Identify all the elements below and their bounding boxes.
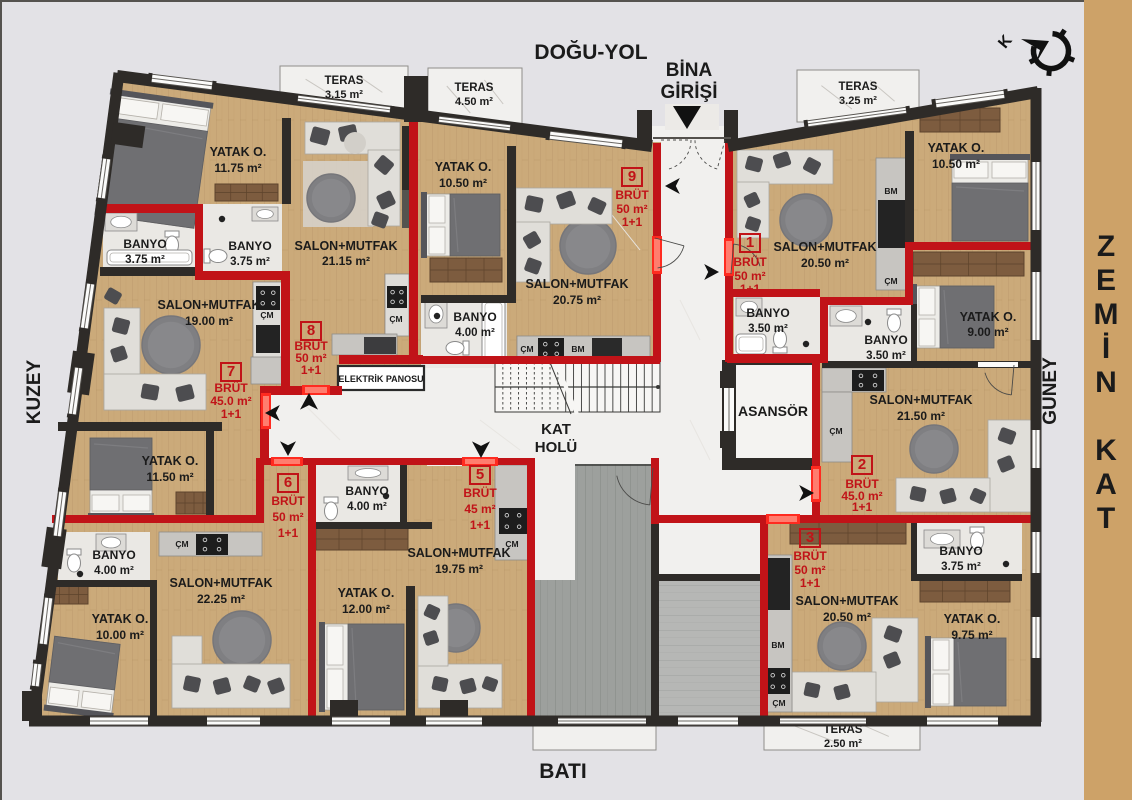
svg-text:A: A: [1095, 468, 1117, 501]
svg-text:ÇM: ÇM: [829, 426, 842, 436]
svg-text:ÇM: ÇM: [260, 310, 273, 320]
svg-text:N: N: [1095, 366, 1117, 399]
svg-text:SALON+MUTFAK: SALON+MUTFAK: [294, 239, 397, 253]
svg-text:10.50 m²: 10.50 m²: [932, 157, 980, 171]
svg-text:3: 3: [806, 529, 814, 546]
svg-text:19.00 m²: 19.00 m²: [185, 314, 233, 328]
svg-text:3.75 m²: 3.75 m²: [125, 254, 165, 266]
svg-text:DOĞU-YOL: DOĞU-YOL: [534, 40, 647, 64]
svg-text:K: K: [1095, 434, 1117, 467]
svg-text:YATAK O.: YATAK O.: [142, 454, 199, 468]
svg-text:21.15 m²: 21.15 m²: [322, 254, 370, 268]
svg-text:3.75 m²: 3.75 m²: [230, 256, 270, 268]
svg-text:TERAS: TERAS: [455, 82, 494, 94]
svg-text:E: E: [1096, 264, 1116, 297]
svg-text:BANYO: BANYO: [123, 237, 166, 251]
svg-text:KAT: KAT: [541, 421, 571, 438]
svg-text:YATAK O.: YATAK O.: [960, 310, 1017, 324]
svg-text:5: 5: [476, 466, 484, 483]
svg-text:T: T: [1097, 502, 1115, 535]
svg-text:BANYO: BANYO: [864, 333, 907, 347]
svg-text:SALON+MUTFAK: SALON+MUTFAK: [407, 546, 510, 560]
svg-text:50 m²: 50 m²: [272, 510, 303, 524]
svg-text:ÇM: ÇM: [884, 276, 897, 286]
svg-text:3.50 m²: 3.50 m²: [866, 350, 906, 362]
svg-text:BRÜT: BRÜT: [463, 485, 497, 500]
svg-text:SALON+MUTFAK: SALON+MUTFAK: [525, 277, 628, 291]
svg-text:M: M: [1094, 298, 1119, 331]
svg-text:GÜNEY: GÜNEY: [1040, 357, 1061, 425]
svg-text:20.50 m²: 20.50 m²: [801, 256, 849, 270]
svg-text:11.50 m²: 11.50 m²: [146, 470, 193, 484]
svg-text:YATAK O.: YATAK O.: [928, 141, 985, 155]
svg-text:BM: BM: [571, 344, 584, 354]
svg-text:7: 7: [227, 363, 235, 380]
svg-text:10.50 m²: 10.50 m²: [439, 176, 487, 190]
svg-text:İ: İ: [1102, 332, 1110, 365]
svg-text:BRÜT: BRÜT: [615, 187, 649, 202]
svg-text:YATAK O.: YATAK O.: [92, 612, 149, 626]
svg-text:45.0 m²: 45.0 m²: [210, 394, 251, 408]
svg-text:1+1: 1+1: [278, 526, 299, 540]
svg-text:1: 1: [746, 234, 754, 251]
svg-text:GİRİŞİ: GİRİŞİ: [660, 82, 717, 103]
svg-text:BANYO: BANYO: [228, 239, 271, 253]
svg-text:BM: BM: [884, 186, 897, 196]
svg-text:4.50 m²: 4.50 m²: [455, 96, 493, 108]
svg-text:YATAK O.: YATAK O.: [435, 160, 492, 174]
svg-text:10.00 m²: 10.00 m²: [96, 628, 144, 642]
svg-text:ASANSÖR: ASANSÖR: [738, 403, 808, 419]
svg-text:BRÜT: BRÜT: [271, 493, 305, 508]
svg-text:YATAK O.: YATAK O.: [338, 586, 395, 600]
svg-text:1+1: 1+1: [800, 576, 821, 590]
svg-text:1+1: 1+1: [622, 215, 643, 229]
svg-text:9.75 m²: 9.75 m²: [951, 628, 992, 642]
svg-text:BRÜT: BRÜT: [733, 254, 767, 269]
svg-text:1+1: 1+1: [301, 363, 322, 377]
svg-text:1+1: 1+1: [470, 518, 491, 532]
svg-text:1+1: 1+1: [221, 407, 242, 421]
svg-text:4.00 m²: 4.00 m²: [455, 327, 495, 339]
svg-text:4.00 m²: 4.00 m²: [94, 565, 134, 577]
svg-text:YATAK O.: YATAK O.: [210, 145, 267, 159]
svg-text:45 m²: 45 m²: [464, 502, 495, 516]
svg-text:8: 8: [307, 322, 315, 339]
svg-text:ÇM: ÇM: [520, 344, 533, 354]
svg-text:BRÜT: BRÜT: [214, 380, 248, 395]
svg-text:SALON+MUTFAK: SALON+MUTFAK: [157, 298, 260, 312]
svg-text:3.25 m²: 3.25 m²: [839, 95, 877, 107]
svg-text:ÇM: ÇM: [772, 698, 785, 708]
svg-text:BANYO: BANYO: [92, 548, 135, 562]
svg-text:BATI: BATI: [539, 760, 586, 783]
svg-text:9.00 m²: 9.00 m²: [967, 325, 1008, 339]
svg-text:22.25 m²: 22.25 m²: [197, 592, 245, 606]
svg-text:2.50 m²: 2.50 m²: [824, 738, 862, 750]
svg-text:SALON+MUTFAK: SALON+MUTFAK: [773, 240, 876, 254]
svg-text:TERAS: TERAS: [325, 75, 364, 87]
svg-text:ELEKTRİK PANOSU: ELEKTRİK PANOSU: [338, 374, 423, 384]
svg-text:BM: BM: [771, 640, 784, 650]
svg-text:50 m²: 50 m²: [794, 563, 825, 577]
svg-text:BANYO: BANYO: [746, 306, 789, 320]
svg-text:Z: Z: [1097, 230, 1115, 263]
svg-text:50 m²: 50 m²: [734, 269, 765, 283]
svg-text:BRÜT: BRÜT: [793, 548, 827, 563]
svg-text:4.00 m²: 4.00 m²: [347, 501, 387, 513]
svg-text:3.75 m²: 3.75 m²: [941, 561, 981, 573]
svg-text:SALON+MUTFAK: SALON+MUTFAK: [869, 393, 972, 407]
svg-text:ÇM: ÇM: [389, 314, 402, 324]
svg-text:20.75 m²: 20.75 m²: [553, 293, 601, 307]
svg-text:2: 2: [858, 456, 866, 473]
svg-text:BANYO: BANYO: [939, 544, 982, 558]
svg-text:20.50 m²: 20.50 m²: [823, 610, 871, 624]
svg-text:BANYO: BANYO: [453, 310, 496, 324]
svg-text:YATAK O.: YATAK O.: [944, 612, 1001, 626]
svg-text:1+1: 1+1: [852, 500, 873, 514]
svg-text:SALON+MUTFAK: SALON+MUTFAK: [169, 576, 272, 590]
svg-text:TERAS: TERAS: [839, 81, 878, 93]
svg-text:KUZEY: KUZEY: [24, 359, 45, 424]
svg-text:12.00 m²: 12.00 m²: [342, 602, 390, 616]
svg-text:1+1: 1+1: [740, 282, 761, 296]
svg-text:11.75 m²: 11.75 m²: [214, 161, 261, 175]
svg-text:50 m²: 50 m²: [616, 202, 647, 216]
svg-text:3.50 m²: 3.50 m²: [748, 323, 788, 335]
svg-text:19.75 m²: 19.75 m²: [435, 562, 483, 576]
svg-text:6: 6: [284, 474, 292, 491]
svg-text:21.50 m²: 21.50 m²: [897, 409, 945, 423]
svg-text:SALON+MUTFAK: SALON+MUTFAK: [795, 594, 898, 608]
svg-text:9: 9: [628, 168, 636, 185]
svg-text:BANYO: BANYO: [345, 484, 388, 498]
svg-text:ÇM: ÇM: [175, 539, 188, 549]
svg-text:BİNA: BİNA: [666, 60, 713, 81]
svg-text:HOLÜ: HOLÜ: [535, 439, 578, 456]
